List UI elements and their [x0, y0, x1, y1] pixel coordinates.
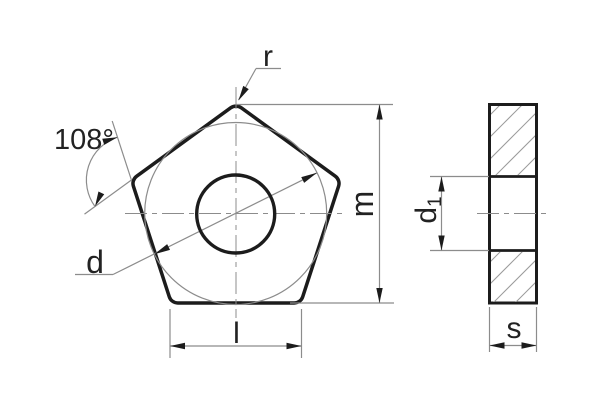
r-leader-arrow [236, 86, 249, 102]
m-label: m [344, 191, 380, 218]
front-view [113, 87, 347, 318]
technical-drawing: r 108° d m l [0, 0, 600, 400]
dim-height-m: m [236, 105, 394, 304]
dim-edge-length-l: l [170, 309, 302, 358]
dim-vertex-angle: 108° [54, 121, 131, 214]
side-view [477, 45, 560, 328]
s-label: s [507, 312, 522, 345]
dim-corner-radius: r [236, 40, 281, 102]
side-view-body [490, 105, 537, 304]
m-arrow-top [376, 105, 382, 120]
angle-extension-line-lower [85, 180, 132, 214]
d1-label: d1 [410, 196, 446, 223]
d-arrow-upper [301, 170, 318, 183]
s-arrow-right [522, 342, 537, 348]
dim-thickness-s: s [490, 307, 537, 352]
angle-extension-line-upper [112, 121, 131, 180]
s-arrow-left [490, 342, 505, 348]
l-label: l [233, 317, 240, 350]
hatch-top-section [490, 45, 560, 203]
d-dimension-line [113, 173, 317, 275]
d1-arrow-top [438, 177, 444, 192]
l-arrow-right [287, 343, 302, 349]
d1-arrow-bottom [438, 236, 444, 251]
d-label: d [86, 244, 104, 280]
l-arrow-left [170, 343, 185, 349]
m-arrow-bottom [376, 288, 382, 303]
angle-label: 108° [54, 124, 114, 156]
hatch-bottom-section [490, 192, 560, 328]
r-label: r [263, 40, 273, 73]
